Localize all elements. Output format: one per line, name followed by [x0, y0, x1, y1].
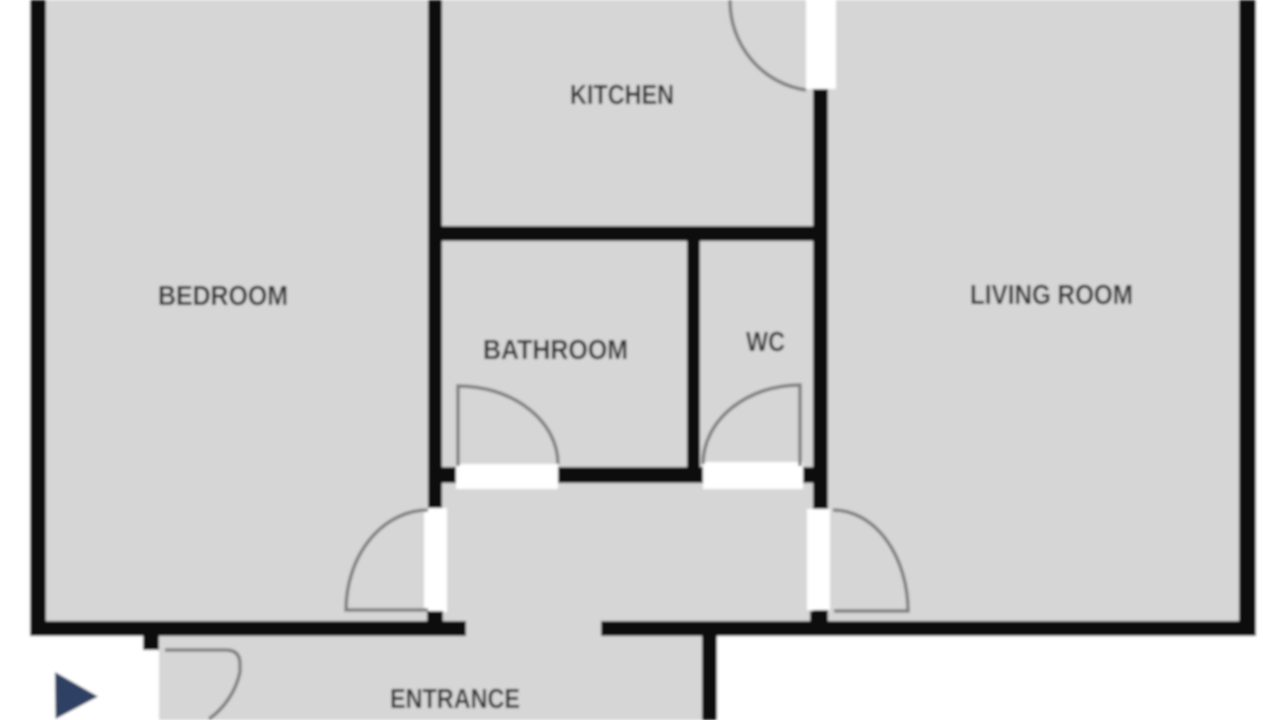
svg-text:BEDROOM: BEDROOM	[158, 280, 288, 311]
svg-text:LIVING ROOM: LIVING ROOM	[970, 279, 1133, 310]
svg-text:WC: WC	[746, 326, 785, 357]
svg-text:BATHROOM: BATHROOM	[483, 334, 628, 365]
svg-text:ENTRANCE: ENTRANCE	[390, 683, 520, 714]
svg-text:KITCHEN: KITCHEN	[570, 79, 674, 110]
